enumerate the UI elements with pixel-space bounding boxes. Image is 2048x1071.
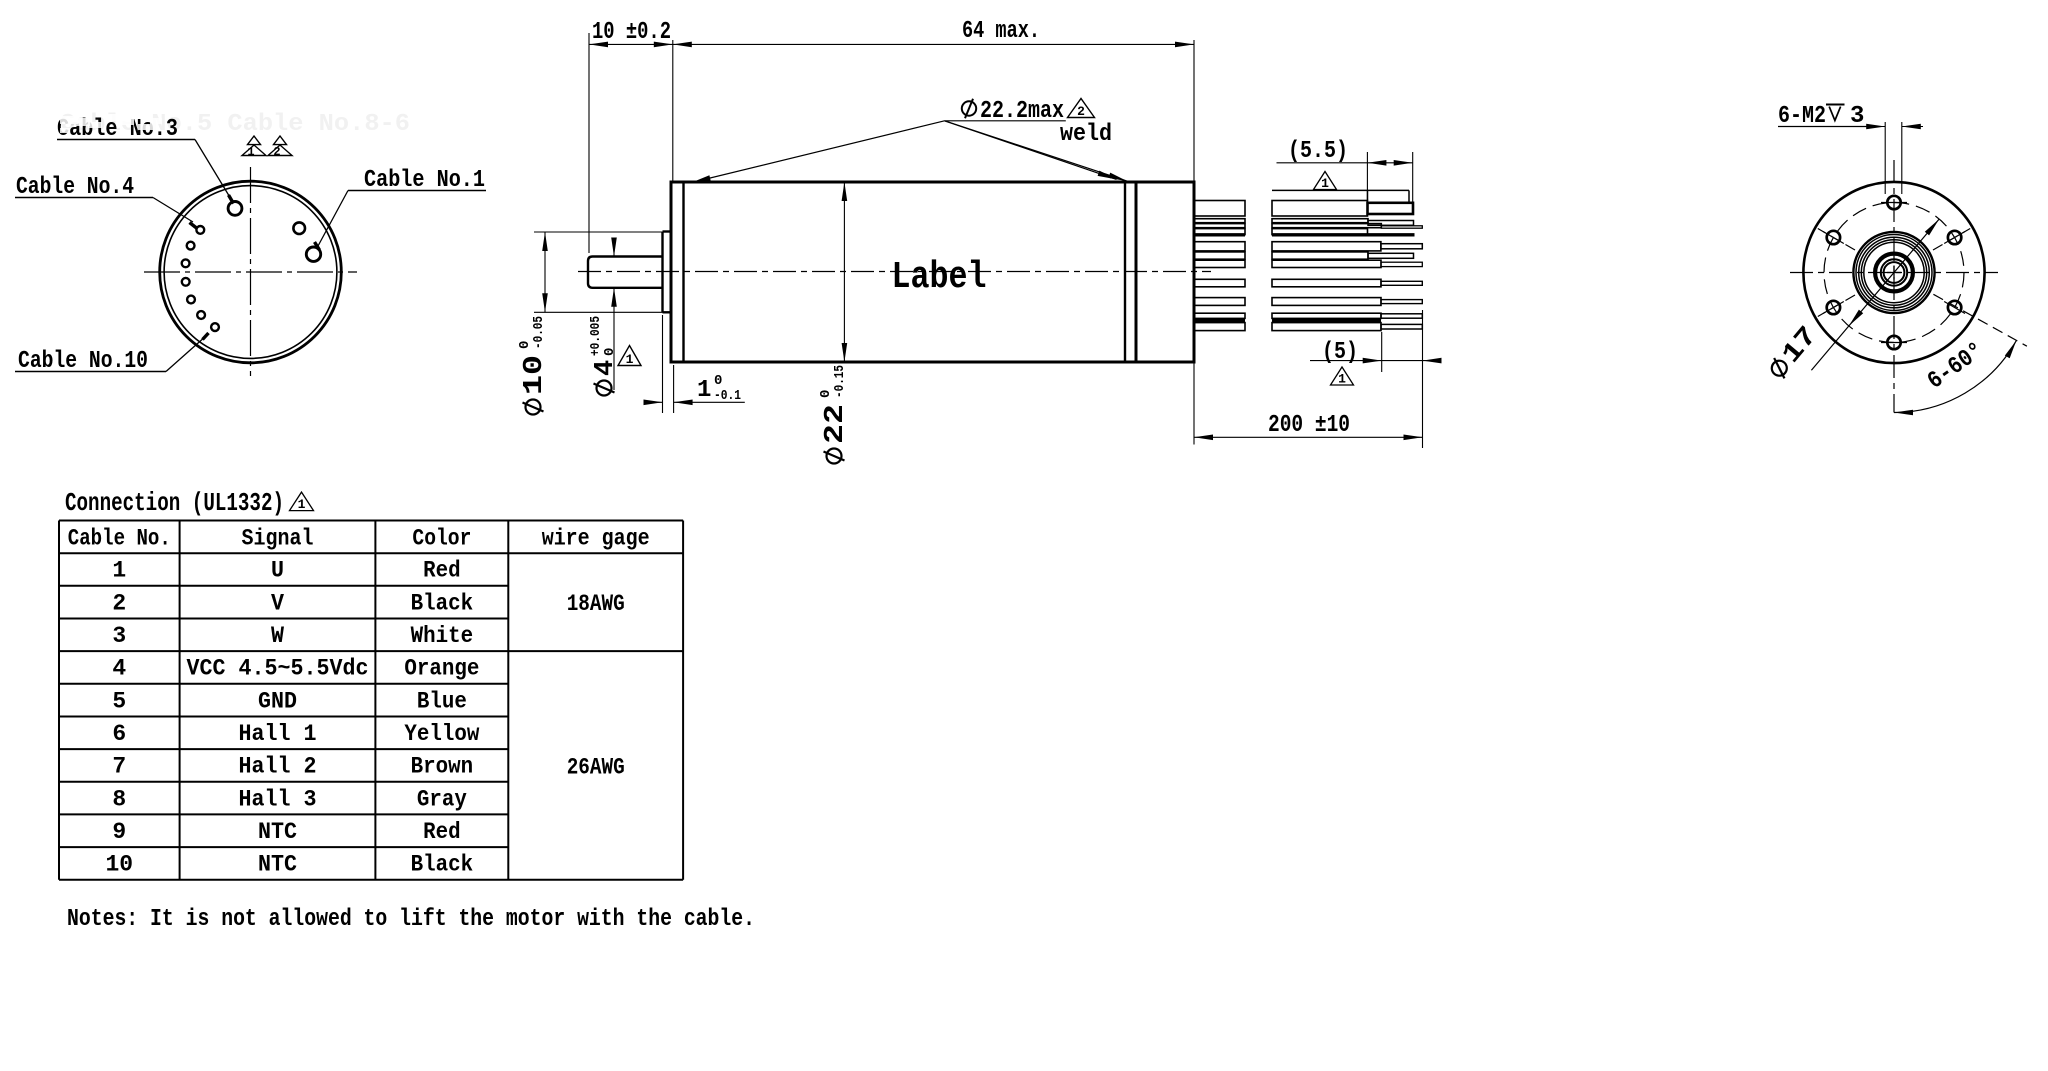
svg-text:Hall 1: Hall 1 xyxy=(239,721,317,747)
svg-text:NTC: NTC xyxy=(258,819,297,845)
svg-text:weld: weld xyxy=(1060,121,1112,148)
svg-text:0: 0 xyxy=(602,348,618,356)
svg-text:10 ±0.2: 10 ±0.2 xyxy=(592,19,671,46)
svg-text:7: 7 xyxy=(112,754,126,780)
svg-text:6: 6 xyxy=(112,721,126,747)
svg-text:1: 1 xyxy=(112,558,126,584)
svg-text:-0.05: -0.05 xyxy=(531,316,547,349)
svg-text:4: 4 xyxy=(591,360,621,376)
svg-text:1: 1 xyxy=(298,497,306,512)
svg-text:NTC: NTC xyxy=(258,852,297,878)
svg-text:200 ±10: 200 ±10 xyxy=(1268,412,1350,439)
svg-text:2: 2 xyxy=(273,145,280,159)
svg-text:Blue: Blue xyxy=(417,688,467,714)
svg-text:1: 1 xyxy=(1321,176,1329,191)
svg-text:Brown: Brown xyxy=(411,754,474,780)
svg-text:Connection (UL1332): Connection (UL1332) xyxy=(65,488,284,518)
svg-text:3: 3 xyxy=(112,623,126,649)
svg-text:0: 0 xyxy=(714,373,722,389)
svg-text:Hall 2: Hall 2 xyxy=(239,754,317,780)
svg-text:8: 8 xyxy=(112,786,126,812)
svg-text:Hall 3: Hall 3 xyxy=(239,786,317,812)
svg-text:2: 2 xyxy=(1077,104,1085,119)
svg-text:1: 1 xyxy=(697,377,711,404)
svg-text:wire gage: wire gage xyxy=(542,526,650,552)
svg-text:(5.5): (5.5) xyxy=(1288,138,1348,165)
svg-text:Black: Black xyxy=(411,590,474,616)
svg-text:22: 22 xyxy=(821,404,851,444)
svg-text:-0.15: -0.15 xyxy=(832,365,848,398)
svg-text:White: White xyxy=(411,623,474,649)
svg-text:(5): (5) xyxy=(1322,339,1358,366)
svg-text:VCC 4.5~5.5Vdc: VCC 4.5~5.5Vdc xyxy=(187,656,369,682)
svg-text:26AWG: 26AWG xyxy=(567,755,625,781)
svg-text:V: V xyxy=(271,590,284,616)
svg-text:1: 1 xyxy=(626,352,634,367)
svg-text:GND: GND xyxy=(258,688,297,714)
svg-text:Gray: Gray xyxy=(417,786,467,812)
svg-text:18AWG: 18AWG xyxy=(567,591,625,617)
svg-text:9: 9 xyxy=(112,819,126,845)
svg-text:10: 10 xyxy=(105,852,133,878)
svg-text:-0.1: -0.1 xyxy=(714,388,741,404)
svg-text:Orange: Orange xyxy=(404,656,479,682)
svg-text:1: 1 xyxy=(247,145,254,159)
svg-text:Notes: It is not allowed to li: Notes: It is not allowed to lift the mot… xyxy=(67,906,755,933)
svg-text:W: W xyxy=(271,623,284,649)
svg-text:Yellow: Yellow xyxy=(404,721,479,747)
svg-text:Black: Black xyxy=(411,852,474,878)
svg-text:4: 4 xyxy=(112,656,126,682)
svg-text:10: 10 xyxy=(520,355,550,395)
svg-text:64 max.: 64 max. xyxy=(962,18,1040,45)
svg-text:Label: Label xyxy=(892,256,987,299)
svg-text:2: 2 xyxy=(112,590,126,616)
svg-text:Color: Color xyxy=(412,526,471,552)
svg-text:5: 5 xyxy=(112,688,126,714)
svg-text:Signal: Signal xyxy=(242,526,314,552)
svg-text:1: 1 xyxy=(1338,372,1346,387)
svg-text:U: U xyxy=(271,558,284,584)
svg-text:Red: Red xyxy=(423,819,461,845)
svg-text:Red: Red xyxy=(423,558,461,584)
svg-text:Cable No.: Cable No. xyxy=(68,526,171,552)
